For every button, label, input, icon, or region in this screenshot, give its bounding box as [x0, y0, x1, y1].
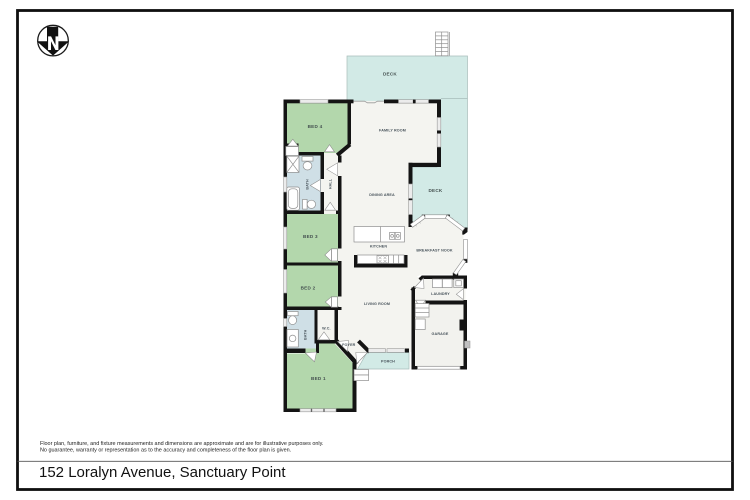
svg-text:FOYER: FOYER [342, 343, 356, 347]
svg-text:Floor plan, furniture, and fix: Floor plan, furniture, and fixture measu… [40, 441, 324, 447]
svg-text:BREAKFAST NOOK: BREAKFAST NOOK [416, 249, 453, 253]
svg-text:BED 4: BED 4 [308, 124, 323, 129]
svg-text:DECK: DECK [428, 188, 442, 193]
svg-text:LIVING ROOM: LIVING ROOM [364, 302, 390, 306]
svg-text:No guarantee, warranty or repr: No guarantee, warranty or representation… [40, 448, 292, 454]
svg-text:HALL: HALL [329, 178, 333, 189]
svg-text:BED 3: BED 3 [303, 234, 318, 239]
svg-text:KITCHEN: KITCHEN [370, 245, 387, 249]
svg-text:BED 1: BED 1 [311, 376, 326, 381]
svg-text:BATH: BATH [306, 179, 310, 190]
svg-text:FAMILY ROOM: FAMILY ROOM [379, 129, 406, 133]
svg-text:DINING AREA: DINING AREA [369, 193, 395, 197]
svg-text:BATH: BATH [303, 329, 307, 340]
svg-text:PORCH: PORCH [381, 360, 395, 364]
svg-text:GARAGE: GARAGE [432, 332, 449, 336]
svg-text:DECK: DECK [383, 72, 397, 77]
svg-text:BED 2: BED 2 [301, 286, 316, 291]
svg-text:W.C.: W.C. [322, 327, 330, 331]
svg-text:LAUNDRY: LAUNDRY [431, 292, 450, 296]
svg-text:152 Loralyn Avenue, Sanctuary: 152 Loralyn Avenue, Sanctuary Point [39, 464, 286, 481]
